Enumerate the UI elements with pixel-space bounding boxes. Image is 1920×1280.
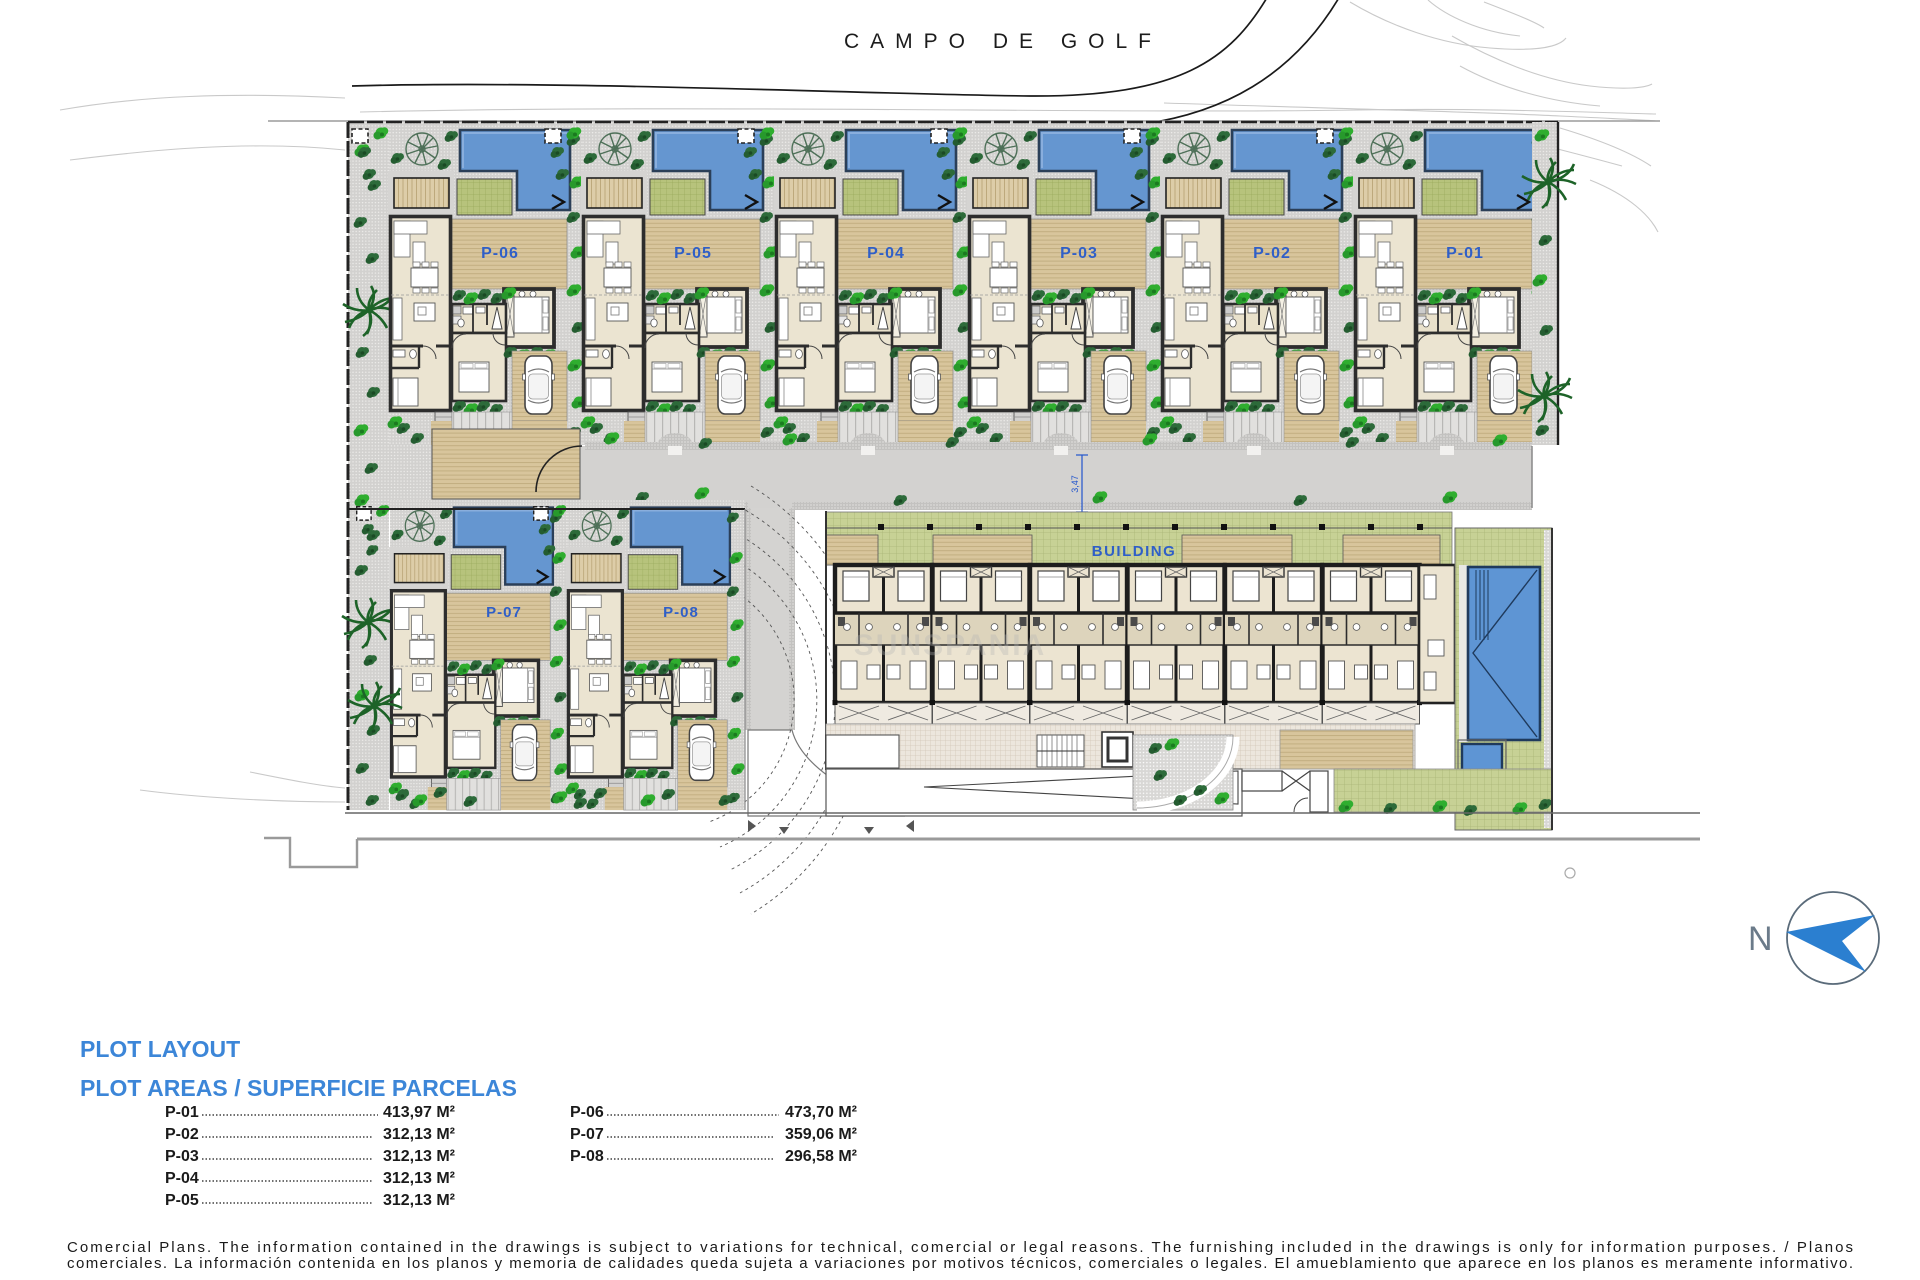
svg-text:BUILDING: BUILDING [1092, 543, 1177, 560]
svg-text:312,13 M²: 312,13 M² [383, 1126, 455, 1143]
svg-text:PLOT LAYOUT: PLOT LAYOUT [80, 1036, 240, 1062]
svg-text:Comercial Plans. The informati: Comercial Plans. The information contain… [67, 1239, 1853, 1256]
svg-text:P-07: P-07 [570, 1126, 604, 1143]
svg-text:P-02: P-02 [165, 1126, 199, 1143]
svg-text:3,47: 3,47 [1070, 475, 1080, 493]
svg-text:312,13 M²: 312,13 M² [383, 1170, 455, 1187]
svg-text:P-04: P-04 [165, 1170, 199, 1187]
svg-text:P-05: P-05 [165, 1192, 199, 1209]
svg-text:P-01: P-01 [165, 1104, 199, 1121]
svg-text:312,13 M²: 312,13 M² [383, 1148, 455, 1165]
svg-text:296,58 M²: 296,58 M² [785, 1148, 857, 1165]
svg-text:P-03: P-03 [1060, 245, 1098, 262]
svg-text:P-03: P-03 [165, 1148, 199, 1165]
svg-text:P-08: P-08 [570, 1148, 604, 1165]
svg-text:P-01: P-01 [1446, 245, 1484, 262]
svg-text:312,13 M²: 312,13 M² [383, 1192, 455, 1209]
svg-text:P-07: P-07 [486, 604, 522, 621]
svg-text:413,97 M²: 413,97 M² [383, 1104, 455, 1121]
svg-text:PLOT AREAS / SUPERFICIE PARCEL: PLOT AREAS / SUPERFICIE PARCELAS [80, 1075, 517, 1101]
svg-text:SUNSPANIA: SUNSPANIA [854, 629, 1046, 662]
svg-text:359,06 M²: 359,06 M² [785, 1126, 857, 1143]
svg-text:comerciales. La información co: comerciales. La información contenida en… [67, 1255, 1853, 1272]
svg-text:CAMPO DE GOLF: CAMPO DE GOLF [844, 30, 1162, 53]
svg-text:P-08: P-08 [663, 604, 699, 621]
svg-text:P-06: P-06 [481, 245, 519, 262]
svg-text:P-02: P-02 [1253, 245, 1291, 262]
svg-text:473,70 M²: 473,70 M² [785, 1104, 857, 1121]
svg-text:P-04: P-04 [867, 245, 905, 262]
svg-text:P-06: P-06 [570, 1104, 604, 1121]
svg-text:N: N [1748, 920, 1773, 958]
svg-text:P-05: P-05 [674, 245, 712, 262]
